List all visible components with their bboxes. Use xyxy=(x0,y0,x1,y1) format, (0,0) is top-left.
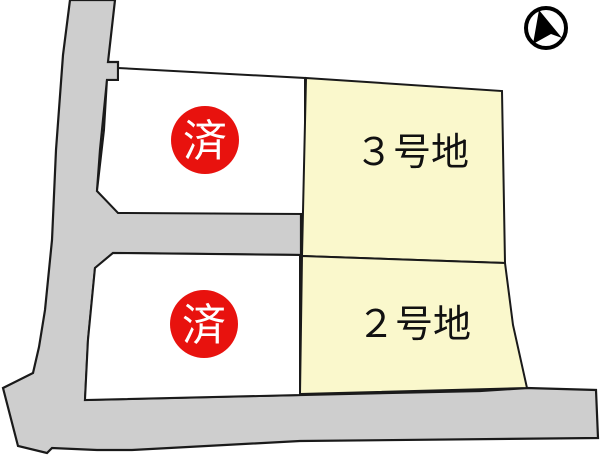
site-plan-svg: ３号地 ２号地 済 済 xyxy=(0,0,600,462)
sold-badge-top: 済 xyxy=(171,106,239,174)
north-arrow-icon xyxy=(526,8,566,48)
sold-badge-top-text: 済 xyxy=(183,116,227,167)
lot-2-label: ２号地 xyxy=(357,302,471,346)
site-plan-map: ３号地 ２号地 済 済 xyxy=(0,0,600,462)
sold-badge-bottom: 済 xyxy=(170,290,238,358)
lot-3-label: ３号地 xyxy=(355,130,469,174)
sold-badge-bottom-text: 済 xyxy=(182,300,226,351)
